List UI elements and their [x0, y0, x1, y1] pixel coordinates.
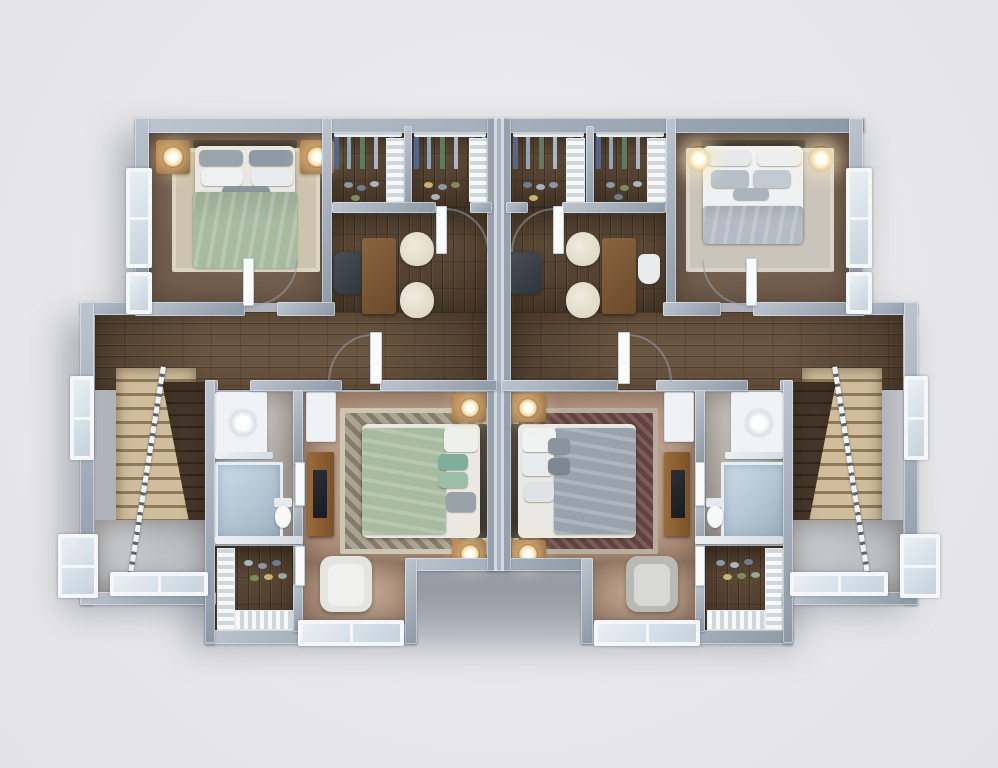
guest-chair [566, 282, 600, 318]
shoe-shelf [647, 138, 666, 202]
shoe-shelf [469, 138, 488, 202]
shoes [716, 560, 725, 566]
window-mullion [838, 575, 841, 593]
armchair-cushion [634, 564, 670, 606]
bed-pillow [524, 482, 554, 502]
guest-chair [400, 232, 434, 266]
door [553, 206, 564, 254]
closet-items [606, 182, 615, 188]
door [695, 462, 705, 506]
window-mullion [350, 623, 353, 643]
window [846, 168, 872, 268]
shoe-shelf [386, 138, 405, 202]
door [370, 332, 382, 384]
closet-items [424, 182, 433, 188]
shoe-shelf [566, 138, 585, 202]
bed-pillow [707, 150, 751, 166]
bathroom-wall [293, 390, 303, 464]
door [695, 546, 705, 586]
low-window [110, 572, 208, 596]
bed-pillow [249, 150, 293, 166]
low-window [790, 572, 888, 596]
sink [744, 408, 774, 438]
bedroom-window [594, 620, 700, 646]
toilet-bowl [275, 506, 291, 528]
bay-window [58, 534, 98, 598]
door [746, 258, 757, 306]
candle-lamp [460, 398, 480, 418]
bed-pillow-teal [438, 472, 468, 488]
bedroom-window [298, 620, 404, 646]
wall-lamp [686, 146, 712, 172]
window-mullion [646, 623, 649, 643]
window-pane [850, 276, 868, 310]
sink [228, 408, 258, 438]
window [126, 168, 152, 268]
guest-chair [400, 282, 434, 318]
exterior-wall-notch [405, 558, 417, 644]
office-chair [508, 252, 542, 294]
interior-wall [380, 380, 497, 391]
bed-pillow-patterned [753, 170, 791, 188]
bed-pillow [548, 458, 570, 474]
interior-wall [783, 380, 793, 643]
closet-wall [470, 202, 492, 213]
door [618, 332, 630, 384]
linen-cabinet [664, 392, 694, 442]
closet-wall [506, 202, 528, 213]
shoe-shelf [217, 548, 235, 630]
window-mullion [903, 565, 937, 568]
bed-pillow [199, 150, 243, 166]
party-wall [487, 118, 511, 571]
interior-wall [501, 380, 618, 391]
shoe-shelf [765, 548, 783, 630]
desk [602, 238, 636, 314]
bed-pillow [733, 188, 769, 200]
bed-pillow [446, 492, 476, 512]
exterior-wall-notch [581, 558, 593, 644]
bathroom-divider [215, 452, 273, 459]
bed-pillow [444, 428, 478, 452]
interior-wall [666, 118, 676, 316]
candle-lamp [518, 398, 538, 418]
door [436, 206, 447, 254]
floor-plan-scene [0, 0, 998, 768]
tv [671, 470, 685, 518]
bed-pillow [251, 168, 293, 186]
window [126, 272, 152, 314]
bathroom-divider [725, 452, 783, 459]
tv [313, 470, 327, 518]
toilet-bowl [707, 506, 723, 528]
interior-wall [205, 380, 215, 643]
closet-wall [562, 202, 666, 213]
window-mullion [73, 417, 91, 420]
door [295, 462, 305, 506]
linen-cabinet [306, 392, 336, 442]
window-mullion [907, 417, 925, 420]
shoes [244, 560, 253, 566]
desk [362, 238, 396, 314]
interior-wall [322, 118, 332, 316]
armchair [320, 556, 372, 612]
bed-pillow [548, 438, 570, 454]
shoe-rack [235, 610, 293, 630]
bed-pillow-teal [438, 454, 468, 470]
shoe-rack [707, 610, 765, 630]
bed-blanket-gray [703, 206, 803, 244]
bed-pillow [201, 168, 243, 186]
window [846, 272, 872, 314]
window-mullion [129, 217, 149, 220]
bathroom-divider [215, 536, 303, 544]
guest-chair [566, 232, 600, 266]
interior-wall [277, 302, 335, 316]
shower [721, 462, 789, 542]
bed-pillow-patterned [711, 170, 749, 188]
armchair [626, 556, 678, 612]
window [904, 376, 928, 460]
closet-divider-wall [404, 126, 412, 211]
interior-wall [663, 302, 721, 316]
bathroom-wall [695, 390, 705, 464]
closet-divider-wall [586, 126, 594, 211]
closet-wall [332, 202, 436, 213]
door [243, 258, 254, 306]
bed-duvet-sage [362, 428, 446, 534]
wall-lamp [808, 146, 834, 172]
window [70, 376, 94, 460]
closet-items [344, 182, 353, 188]
window-pane [130, 276, 148, 310]
bay-window [900, 534, 940, 598]
bed-duvet-sage [193, 192, 297, 268]
shower [215, 462, 283, 542]
door [295, 546, 305, 586]
bathroom-divider [695, 536, 783, 544]
lamp [162, 146, 184, 168]
window-mullion [849, 217, 869, 220]
window-mullion [61, 565, 95, 568]
armchair-cushion [328, 564, 364, 606]
closet-items [523, 182, 532, 188]
task-chair [638, 254, 660, 284]
bed-pillow [757, 150, 801, 166]
window-mullion [158, 575, 161, 593]
